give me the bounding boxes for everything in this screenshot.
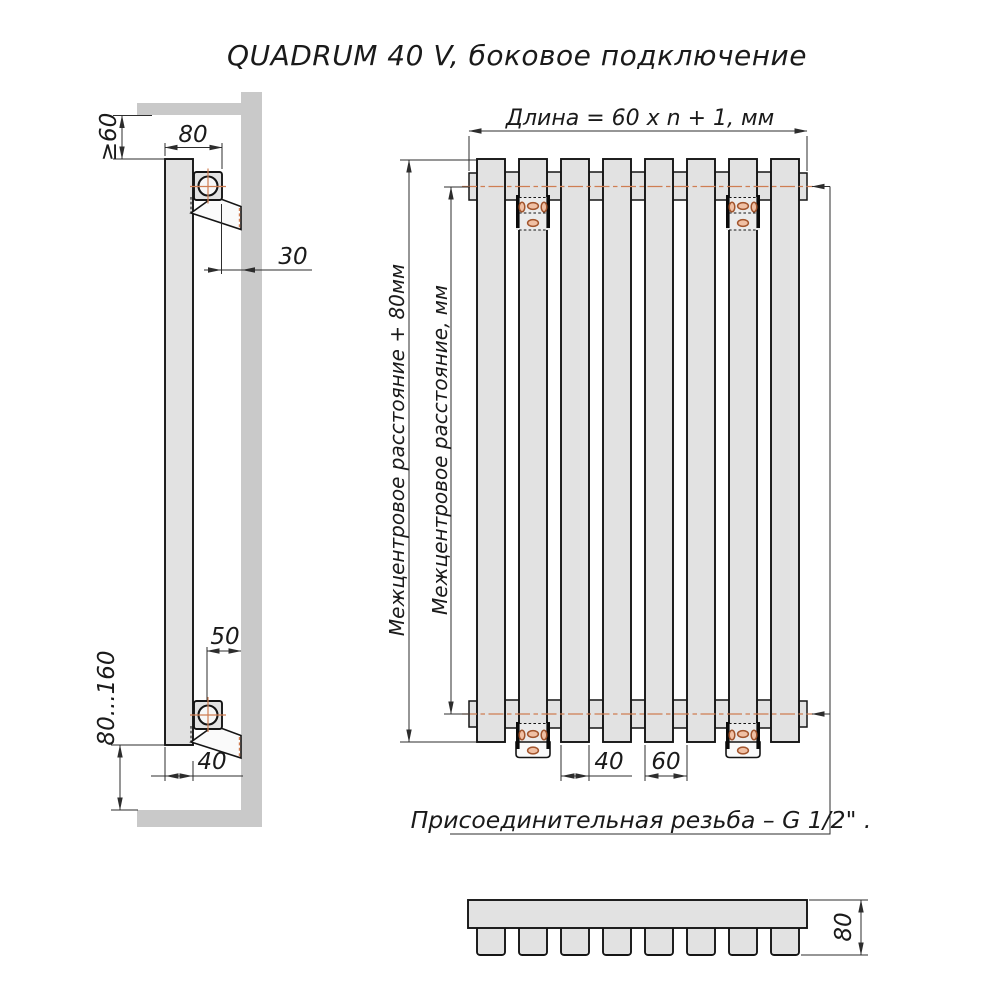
dim-bracket-to-wall-label: 50 (210, 624, 239, 650)
dim-topview-depth: 80 (801, 900, 868, 955)
dim-tube-width: 40 (561, 745, 632, 781)
tube-3 (561, 159, 589, 742)
side-view: ≥60 80 30 50 4 (94, 92, 312, 827)
tube-8 (771, 159, 799, 742)
dim-tube-pitch: 60 (645, 745, 687, 781)
dim-center-inner: Межцентровое расстояние, мм (428, 187, 470, 714)
front-view: Длина = 60 x n + 1, мм Межцентровое расс… (385, 106, 871, 834)
top-bracket-right (726, 195, 760, 230)
tube-1 (477, 159, 505, 742)
technical-drawing: QUADRUM 40 V, боковое подключение ≥60 (0, 0, 1000, 1000)
dim-length-label: Длина = 60 x n + 1, мм (505, 106, 774, 131)
top-view-collector (468, 900, 807, 928)
floor-section (137, 810, 262, 827)
drawing-title: QUADRUM 40 V, боковое подключение (227, 39, 807, 72)
radiator-profile (165, 159, 193, 745)
tube-7 (729, 159, 757, 742)
dim-tube-depth-label: 40 (197, 749, 226, 775)
dim-floor-clearance: 80...160 (94, 650, 164, 810)
dim-floor-clearance-label: 80...160 (94, 650, 120, 745)
dim-center-outer-label: Межцентровое расстояние + 80мм (385, 264, 409, 636)
thread-note-label: Присоединительная резьба – G 1/2" . (411, 806, 872, 834)
dim-tube-width-label: 40 (594, 749, 623, 775)
dim-depth-total-label: 80 (178, 122, 207, 148)
dim-bracket-to-wall: 50 (207, 624, 241, 700)
tube-4 (603, 159, 631, 742)
bottom-bracket-left (516, 722, 550, 758)
dim-topview-depth-label: 80 (831, 912, 857, 941)
tube-2 (519, 159, 547, 742)
dim-wall-offset-label: ≥60 (96, 113, 122, 162)
drawing-page: QUADRUM 40 V, боковое подключение ≥60 (0, 0, 1000, 1000)
bottom-bracket-right (726, 722, 760, 758)
wall-section (241, 92, 262, 827)
tube-6 (687, 159, 715, 742)
top-bracket-left (516, 195, 550, 230)
dim-center-inner-label: Межцентровое расстояние, мм (428, 285, 452, 615)
tube-5 (645, 159, 673, 742)
dim-wall-gap-label: 30 (278, 244, 307, 270)
radiator-tubes (477, 159, 799, 742)
dim-wall-offset: ≥60 (96, 113, 164, 162)
top-view-tubes (477, 925, 799, 955)
sill-section (137, 103, 241, 115)
top-wall-bracket (191, 197, 241, 230)
top-view: 80 (468, 900, 868, 955)
dim-tube-pitch-label: 60 (651, 749, 680, 775)
